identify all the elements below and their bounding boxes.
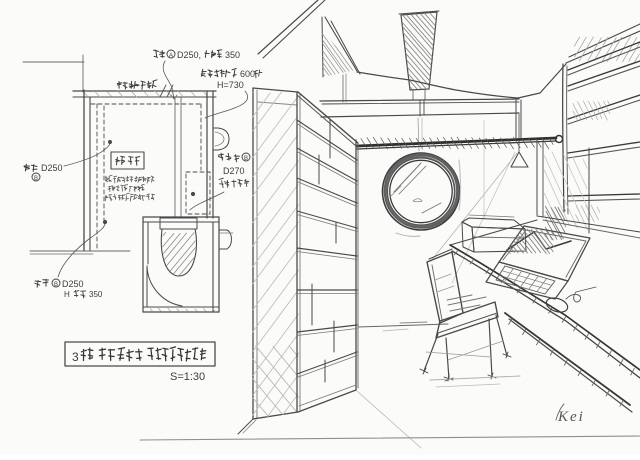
svg-text:350: 350	[89, 290, 103, 299]
svg-text:D250,: D250,	[177, 50, 201, 60]
svg-text:B: B	[54, 282, 58, 288]
svg-text:H=730: H=730	[217, 80, 244, 90]
svg-text:Kei: Kei	[557, 409, 585, 425]
svg-text:D270: D270	[223, 166, 245, 176]
svg-text:D250: D250	[62, 279, 84, 289]
svg-text:B: B	[244, 156, 248, 162]
svg-text:350: 350	[225, 50, 240, 60]
svg-text:3: 3	[72, 350, 79, 364]
svg-text:D250: D250	[41, 163, 63, 173]
svg-text:S=1:30: S=1:30	[170, 371, 205, 383]
svg-text:H: H	[64, 290, 70, 299]
svg-text:600: 600	[240, 69, 255, 79]
svg-text:A: A	[169, 53, 173, 59]
svg-text:B: B	[34, 176, 38, 182]
